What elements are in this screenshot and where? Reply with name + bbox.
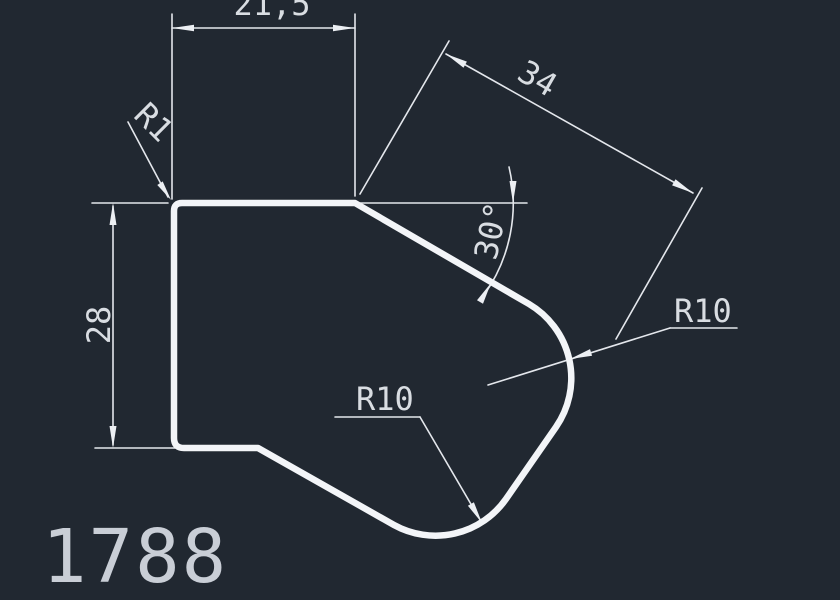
cad-viewport: 21,5 28 34 30° R1 R10	[0, 0, 840, 600]
dim-text-top-width: 21,5	[233, 0, 310, 23]
dim-text-fillet-bottom: R10	[356, 380, 414, 418]
drawing-number-text[interactable]: 1788	[42, 514, 228, 600]
dim-text-left-height: 28	[80, 306, 118, 345]
dim-text-fillet-right: R10	[674, 292, 732, 330]
